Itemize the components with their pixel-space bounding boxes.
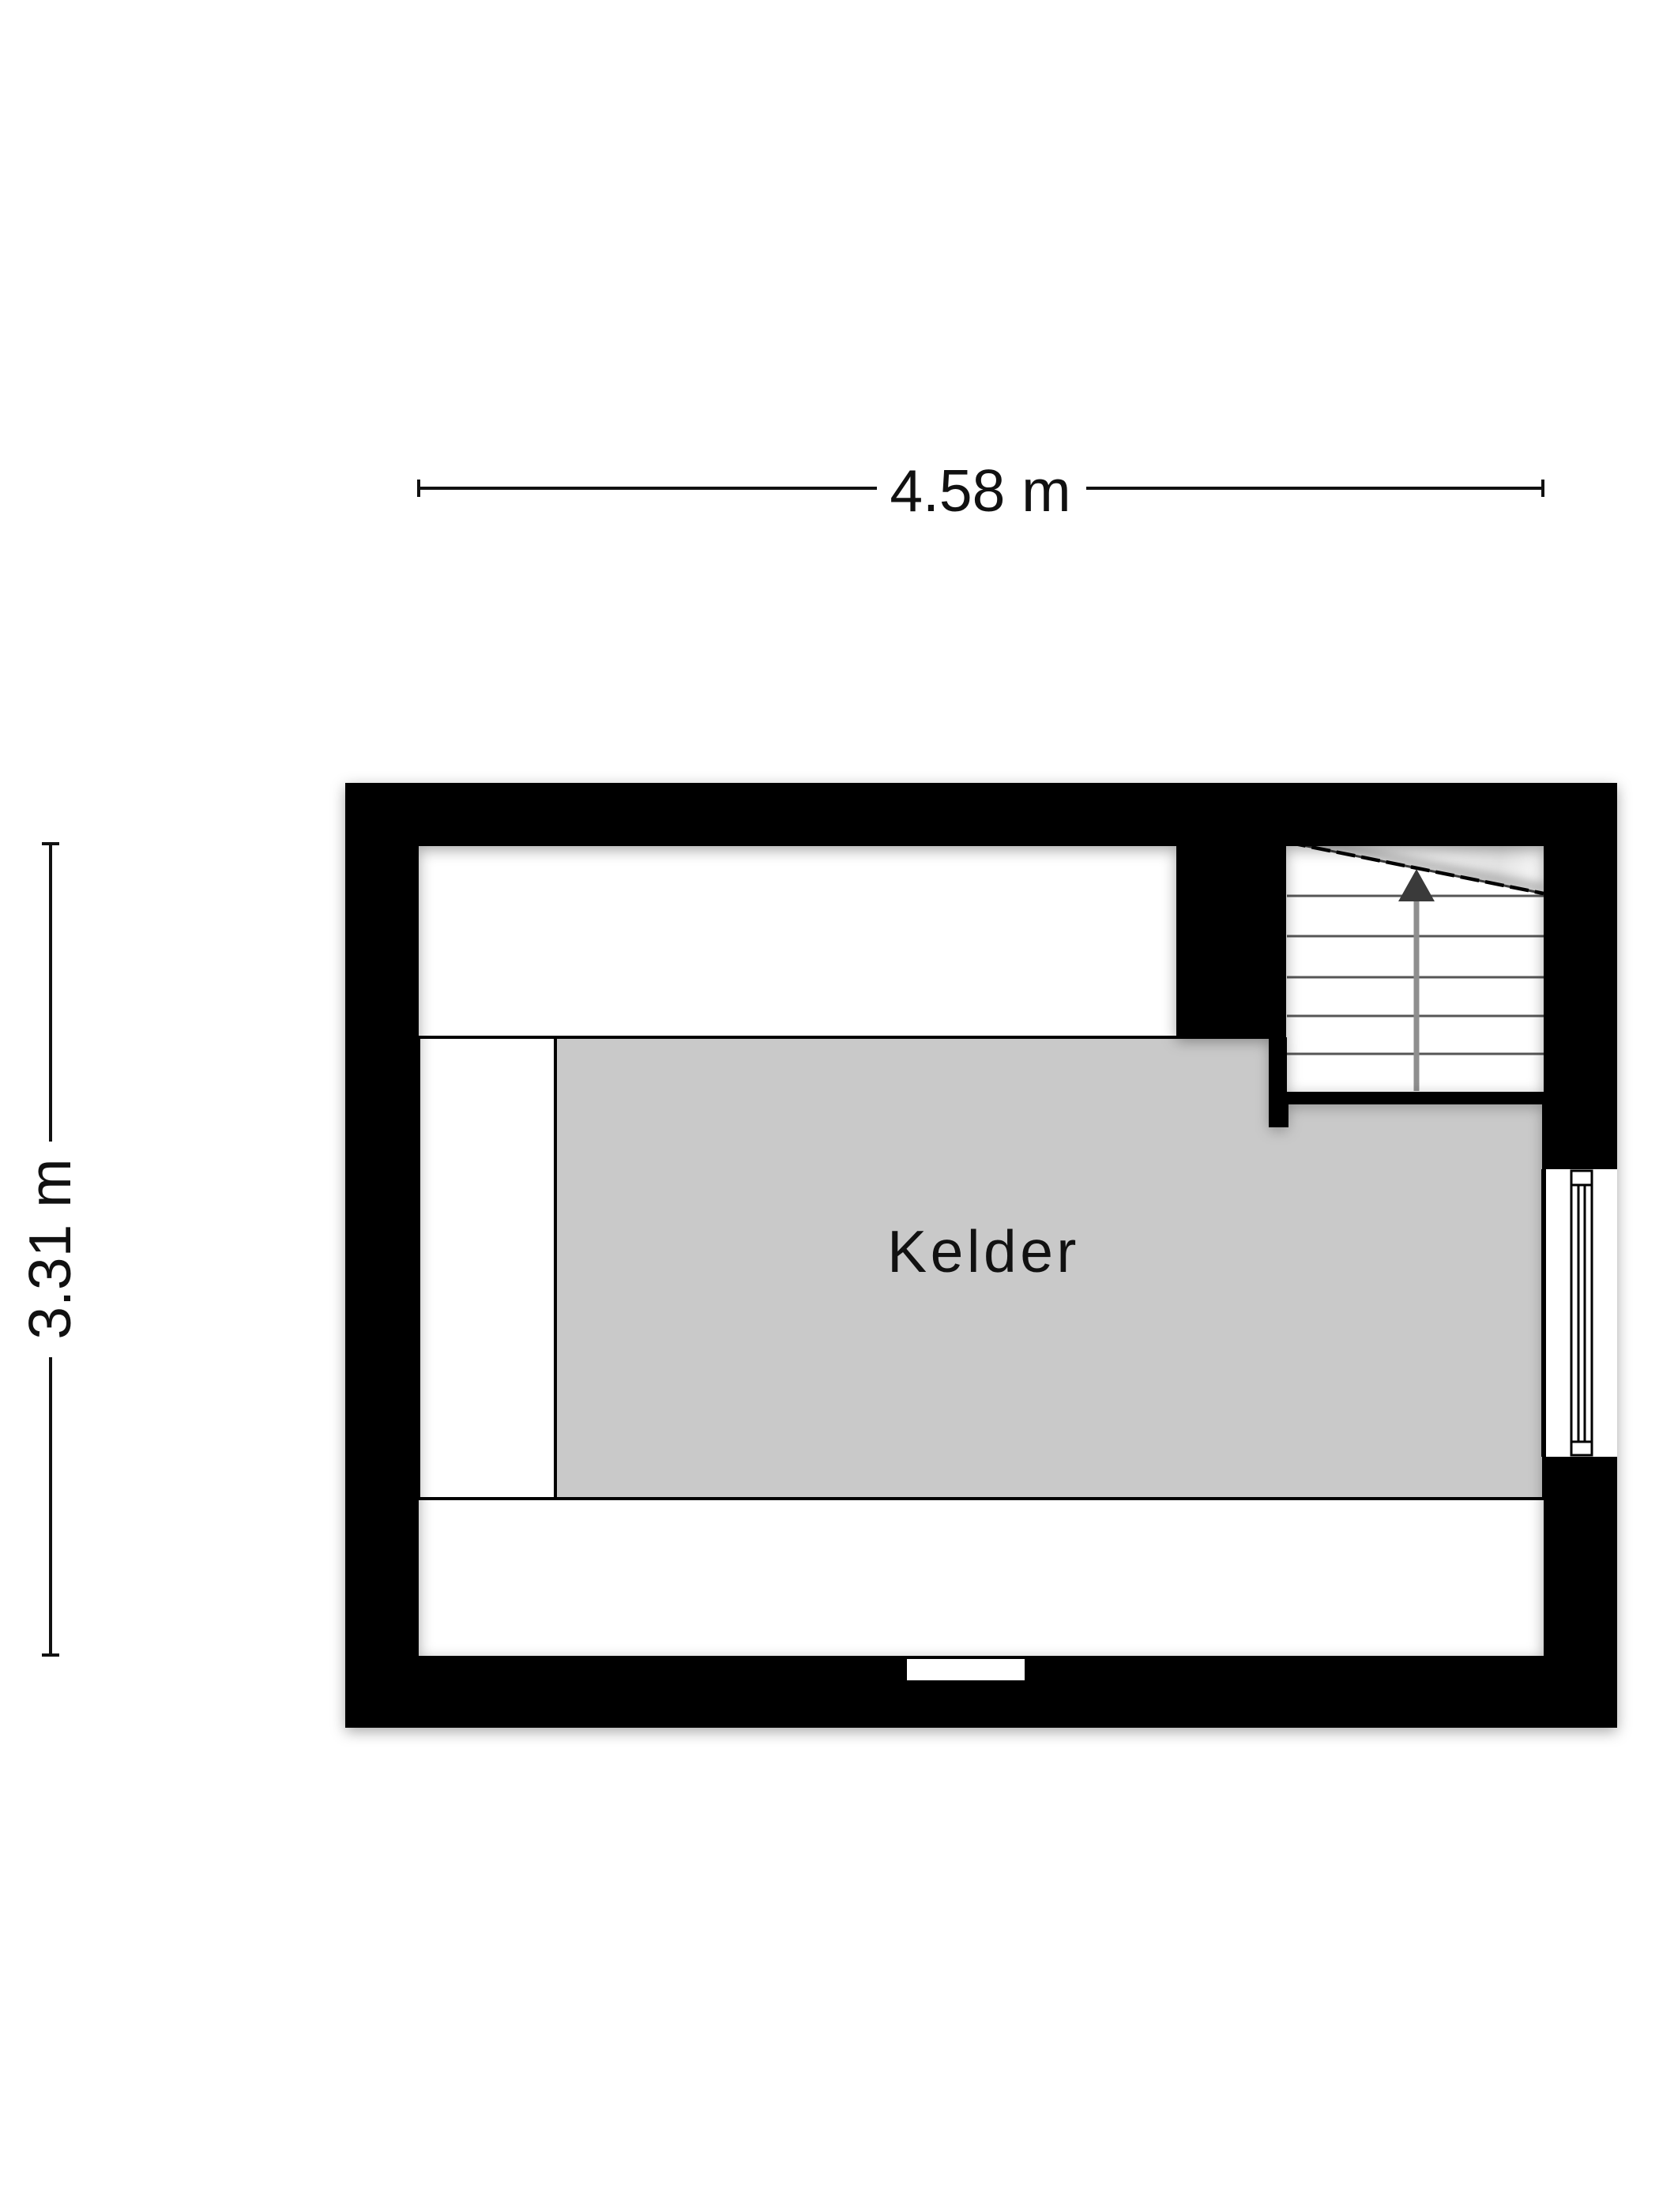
svg-text:4.58 m: 4.58 m	[890, 457, 1070, 524]
svg-text:Kelder: Kelder	[887, 1218, 1080, 1285]
svg-text:3.31 m: 3.31 m	[17, 1158, 83, 1339]
